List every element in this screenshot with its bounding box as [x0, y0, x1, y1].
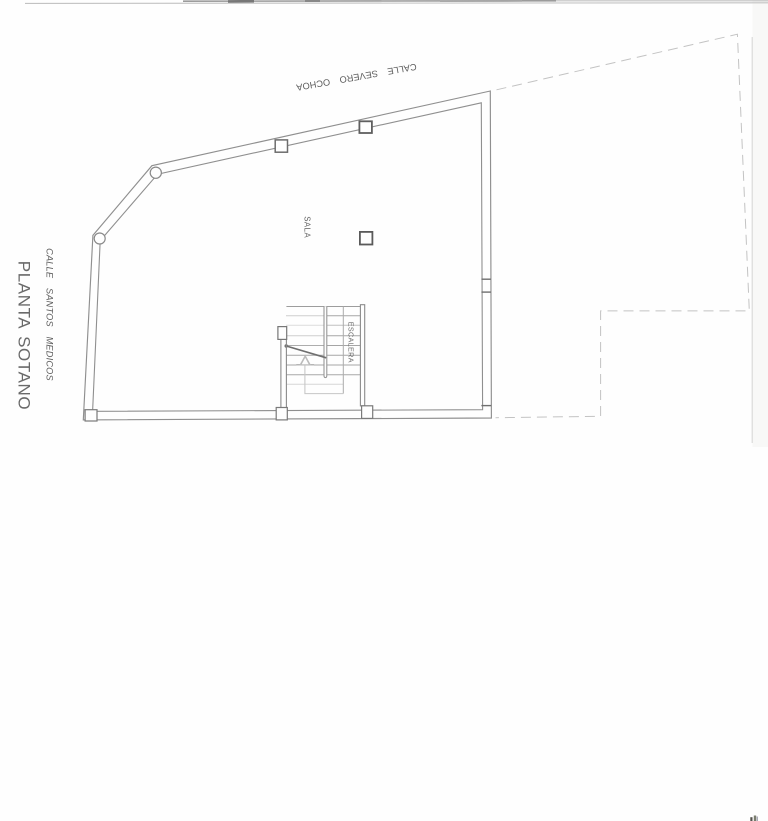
svg-text:PLANTA SOTANO: PLANTA SOTANO — [15, 261, 34, 410]
svg-text:ESCALERA: ESCALERA — [347, 322, 356, 363]
svg-text:SALA: SALA — [303, 216, 312, 238]
svg-text:CALLE SANTOS MEDICOS: CALLE SANTOS MEDICOS — [45, 248, 55, 381]
